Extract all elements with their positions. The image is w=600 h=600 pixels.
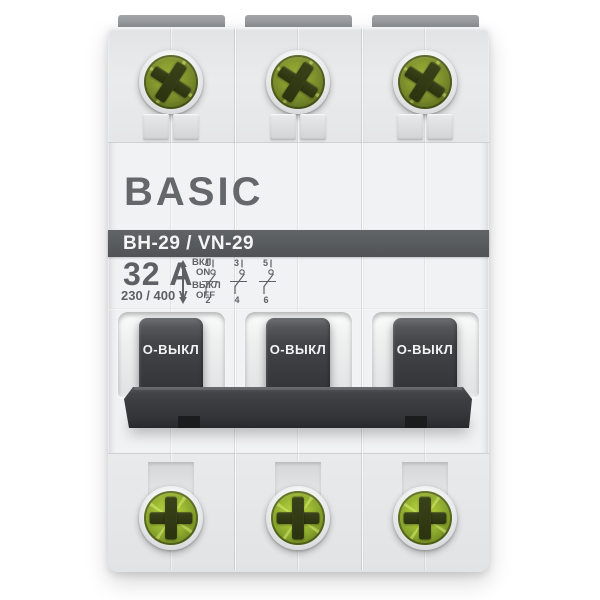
terminal-clamp: [397, 114, 453, 140]
terminal-screw-top-1: [139, 50, 203, 114]
bar-notch: [405, 416, 427, 428]
terminal-number: 4: [234, 295, 239, 305]
terminal-screw-top-3: [393, 50, 457, 114]
phillips-cross-icon: [271, 491, 325, 545]
screw-head: [398, 55, 452, 109]
phillips-cross-icon: [271, 55, 325, 109]
model-text: ВН-29 / VN-29: [108, 230, 489, 257]
phillips-cross-icon: [144, 491, 198, 545]
terminal-number: 5: [263, 258, 268, 268]
terminal-screw-bottom-1: [139, 486, 203, 550]
screw-head: [144, 491, 198, 545]
phillips-cross-icon: [144, 55, 198, 109]
brand-logo: BASIC: [124, 172, 263, 212]
terminal-screw-bottom-3: [393, 486, 457, 550]
screw-head: [271, 55, 325, 109]
on-off-arrow-icon: [178, 260, 188, 304]
terminal-screw-bottom-2: [266, 486, 330, 550]
phillips-cross-icon: [398, 55, 452, 109]
terminal-clamp: [143, 114, 199, 140]
model-band: ВН-29 / VN-29: [108, 230, 489, 257]
face-seam: [108, 308, 489, 310]
breaker-device: BASIC ВН-29 / VN-29 32 A 230 / 400 V ВКЛ…: [108, 15, 489, 572]
terminal-number: 1: [205, 258, 210, 268]
terminal-number: 3: [234, 258, 239, 268]
toggle-label: О-ВЫКЛ: [266, 342, 330, 357]
pole-circuit-diagram: 1 2 3 4 5 6: [202, 256, 284, 306]
product-photo-stage: BASIC ВН-29 / VN-29 32 A 230 / 400 V ВКЛ…: [0, 0, 600, 600]
terminal-clamp: [270, 114, 326, 140]
terminal-number: 2: [205, 295, 210, 305]
screw-head: [144, 55, 198, 109]
module-seam: [361, 28, 364, 570]
terminal-screw-top-2: [266, 50, 330, 114]
screw-head: [398, 491, 452, 545]
screw-head: [271, 491, 325, 545]
phillips-cross-icon: [398, 491, 452, 545]
terminal-number: 6: [263, 295, 268, 305]
toggle-label: О-ВЫКЛ: [393, 342, 457, 357]
toggle-label: О-ВЫКЛ: [139, 342, 203, 357]
trip-bar: [124, 387, 472, 428]
bar-notch: [178, 416, 200, 428]
